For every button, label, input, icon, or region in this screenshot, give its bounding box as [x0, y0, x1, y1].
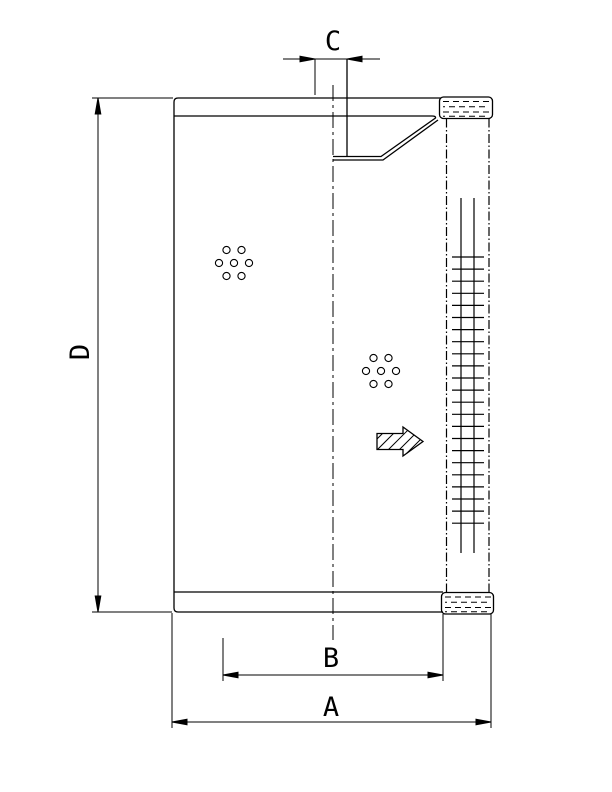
- dim-d-label: D: [65, 344, 96, 360]
- dim-a-label: A: [323, 692, 339, 723]
- dimension-d: D: [65, 98, 173, 612]
- dim-c-arrow-right: [347, 56, 362, 62]
- perforation-hole: [377, 367, 384, 374]
- filter-body: [174, 59, 443, 612]
- perforation-cluster-lower: [362, 354, 399, 387]
- flow-arrow-outline: [377, 427, 423, 456]
- dim-a-arrow-left: [172, 719, 187, 725]
- perforation-hole: [223, 246, 230, 253]
- perforation-hole: [230, 259, 237, 266]
- dimension-b: B: [223, 614, 443, 681]
- dim-b-label: B: [323, 643, 339, 674]
- perforation-hole: [362, 367, 369, 374]
- dimension-c: C: [283, 26, 380, 95]
- body-outline: [174, 98, 443, 612]
- perforation-hole: [370, 380, 377, 387]
- dim-d-arrow-down: [95, 596, 101, 612]
- dim-b-arrow-right: [428, 672, 443, 678]
- perforation-hole: [392, 367, 399, 374]
- drawing-canvas: D C B A: [0, 0, 612, 792]
- dim-d-arrow-up: [95, 98, 101, 114]
- cap-hatch-group: [443, 102, 491, 612]
- perforation-hole: [385, 380, 392, 387]
- filter-media-column: [440, 97, 494, 614]
- media-bottom-cap: [442, 593, 494, 615]
- perforation-hole: [385, 354, 392, 361]
- perforation-hole: [238, 272, 245, 279]
- dim-b-arrow-left: [223, 672, 238, 678]
- technical-drawing: D C B A: [0, 0, 612, 792]
- dim-c-label: C: [325, 26, 341, 57]
- perforation-hole: [370, 354, 377, 361]
- dim-a-arrow-right: [476, 719, 491, 725]
- mesh-rung-group: [452, 257, 484, 523]
- perforation-hole: [245, 259, 252, 266]
- perforation-hole: [223, 272, 230, 279]
- media-top-cap: [440, 97, 493, 119]
- perforation-hole: [215, 259, 222, 266]
- perforation-cluster-upper: [215, 246, 252, 279]
- flow-direction-arrow: [377, 427, 423, 456]
- dim-c-arrow-left: [300, 56, 315, 62]
- perforation-hole: [238, 246, 245, 253]
